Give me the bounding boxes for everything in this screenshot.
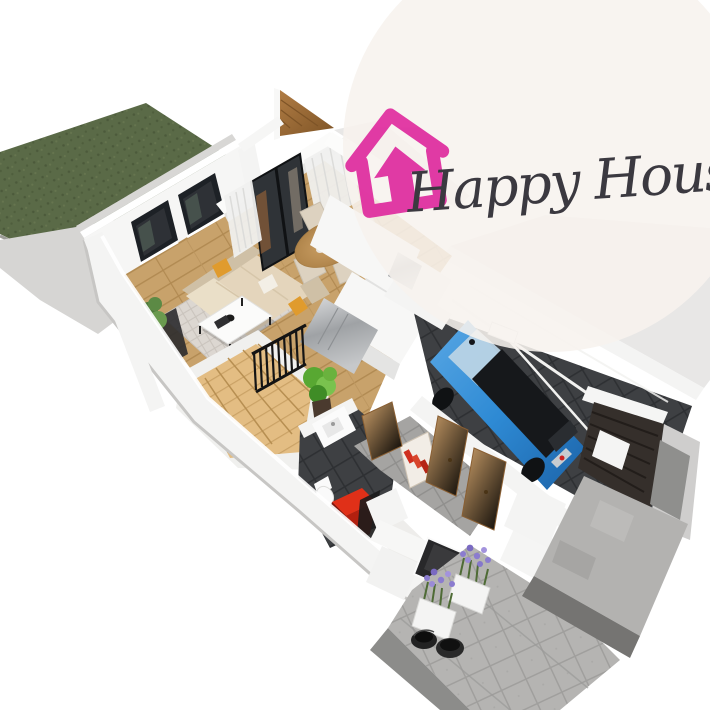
side-mirror [469, 339, 475, 345]
scene-svg: Happy House [0, 0, 710, 710]
floor-plan-render: Happy House [0, 0, 710, 710]
